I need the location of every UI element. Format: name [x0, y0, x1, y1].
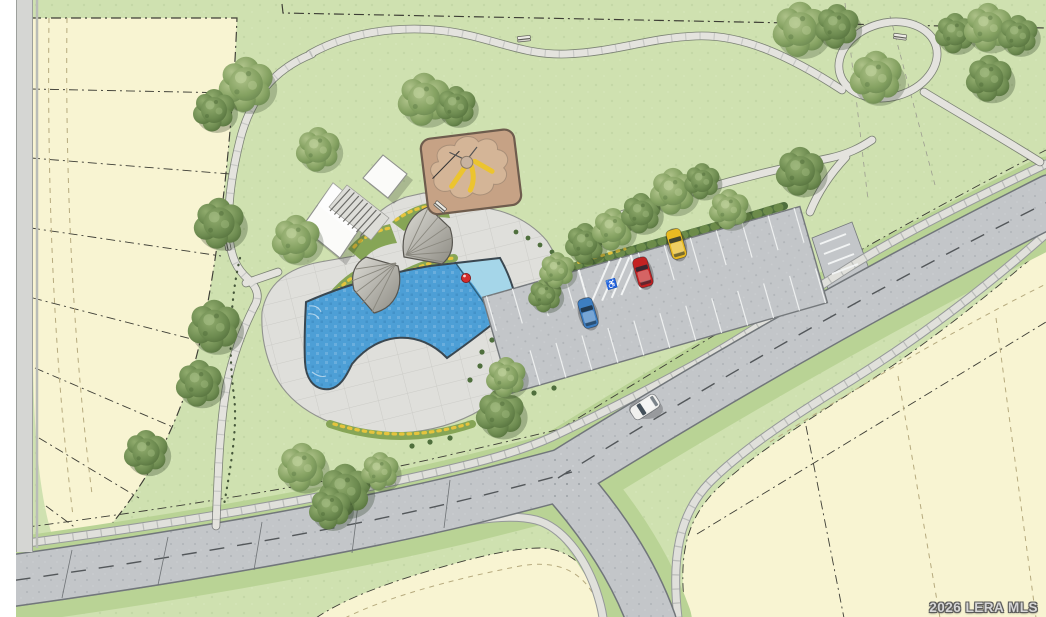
bench [517, 35, 530, 42]
street-left-edge [0, 0, 37, 617]
site-plan-map: ♿ [0, 0, 1046, 617]
playground [420, 128, 523, 215]
watermark-text: 2026 LERA MLS [929, 600, 1038, 615]
pool-float [461, 273, 470, 282]
site-plan-image: ♿ [0, 0, 1046, 617]
